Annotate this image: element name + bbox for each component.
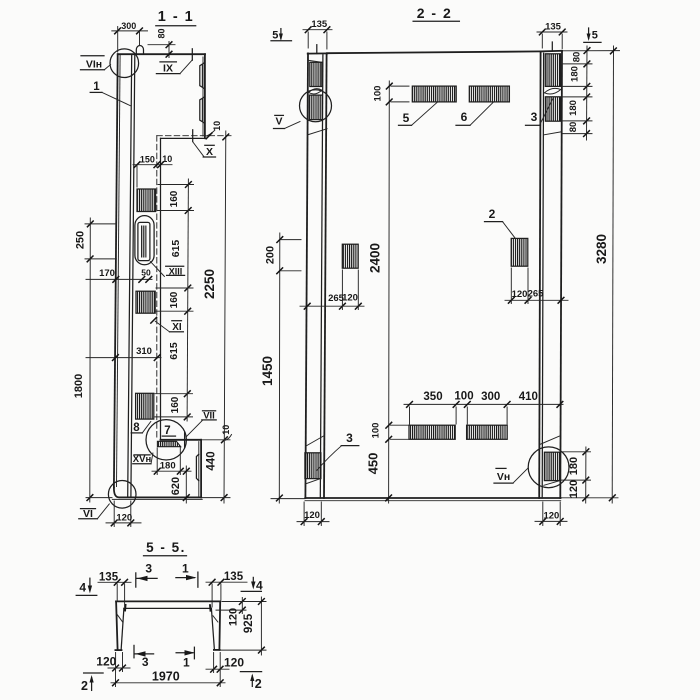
svg-text:4: 4 (79, 581, 86, 595)
svg-text:135: 135 (224, 571, 244, 583)
svg-text:180: 180 (160, 461, 176, 472)
svg-text:80: 80 (568, 122, 579, 133)
svg-text:135: 135 (545, 22, 562, 33)
svg-text:100: 100 (370, 423, 381, 439)
svg-text:350: 350 (423, 391, 442, 403)
svg-text:3: 3 (531, 110, 538, 124)
svg-text:310: 310 (136, 346, 152, 357)
svg-text:2: 2 (489, 207, 496, 221)
svg-text:X: X (206, 146, 213, 158)
svg-text:1970: 1970 (152, 670, 180, 684)
svg-text:160: 160 (170, 396, 181, 413)
svg-text:250: 250 (75, 231, 87, 249)
svg-text:5: 5 (272, 30, 278, 42)
svg-text:100: 100 (454, 391, 473, 403)
svg-text:1: 1 (183, 656, 190, 670)
svg-text:2 - 2: 2 - 2 (417, 5, 453, 21)
svg-text:5: 5 (403, 111, 410, 125)
svg-text:1800: 1800 (73, 374, 85, 398)
svg-text:3: 3 (145, 562, 152, 576)
svg-text:10: 10 (221, 425, 231, 435)
svg-text:150: 150 (140, 155, 155, 165)
svg-text:8: 8 (133, 422, 140, 434)
svg-text:1 - 1: 1 - 1 (158, 9, 195, 25)
svg-text:4: 4 (256, 579, 263, 593)
svg-text:120: 120 (96, 655, 116, 669)
svg-text:5 - 5.: 5 - 5. (146, 540, 186, 555)
svg-text:180: 180 (568, 100, 579, 116)
svg-text:10: 10 (162, 154, 172, 164)
svg-text:2: 2 (255, 677, 262, 691)
svg-text:450: 450 (365, 453, 380, 475)
svg-text:120: 120 (543, 511, 559, 522)
svg-text:120: 120 (304, 510, 320, 521)
svg-text:615: 615 (168, 342, 180, 360)
svg-text:135: 135 (99, 572, 119, 584)
svg-text:620: 620 (170, 477, 182, 495)
svg-text:170: 170 (99, 268, 115, 279)
svg-text:1450: 1450 (260, 356, 275, 386)
svg-text:IX: IX (163, 62, 173, 74)
svg-text:V: V (275, 116, 282, 128)
svg-text:925: 925 (243, 613, 255, 633)
svg-text:180: 180 (568, 457, 580, 475)
svg-text:615: 615 (170, 240, 182, 258)
svg-text:410: 410 (519, 391, 538, 403)
svg-text:3280: 3280 (594, 234, 609, 264)
svg-text:120: 120 (224, 656, 244, 670)
svg-text:200: 200 (264, 246, 276, 264)
svg-text:80: 80 (572, 52, 583, 63)
svg-text:2250: 2250 (202, 269, 217, 299)
svg-text:440: 440 (205, 451, 217, 470)
svg-text:120: 120 (116, 513, 132, 524)
svg-text:160: 160 (169, 291, 180, 308)
svg-text:300: 300 (121, 21, 136, 31)
svg-text:7: 7 (164, 425, 170, 437)
svg-text:2: 2 (81, 679, 88, 693)
svg-text:3: 3 (142, 655, 149, 669)
svg-text:120: 120 (512, 289, 528, 300)
svg-text:VIн: VIн (86, 59, 102, 71)
svg-text:120: 120 (228, 608, 240, 626)
svg-text:3: 3 (346, 431, 353, 445)
svg-text:6: 6 (461, 110, 468, 124)
svg-text:2400: 2400 (368, 243, 383, 273)
svg-text:1: 1 (93, 81, 100, 93)
svg-text:Vн: Vн (497, 471, 510, 483)
svg-text:180: 180 (569, 66, 580, 82)
svg-text:10: 10 (212, 121, 222, 131)
svg-text:265: 265 (528, 289, 545, 300)
svg-text:160: 160 (169, 190, 180, 207)
svg-text:120: 120 (568, 480, 580, 498)
svg-text:50: 50 (141, 268, 151, 278)
svg-text:100: 100 (373, 86, 384, 102)
svg-text:5: 5 (592, 30, 598, 42)
svg-text:135: 135 (311, 19, 328, 30)
svg-text:80: 80 (157, 28, 167, 38)
svg-text:300: 300 (481, 391, 500, 403)
svg-text:120: 120 (342, 293, 358, 304)
svg-text:1: 1 (182, 562, 189, 576)
